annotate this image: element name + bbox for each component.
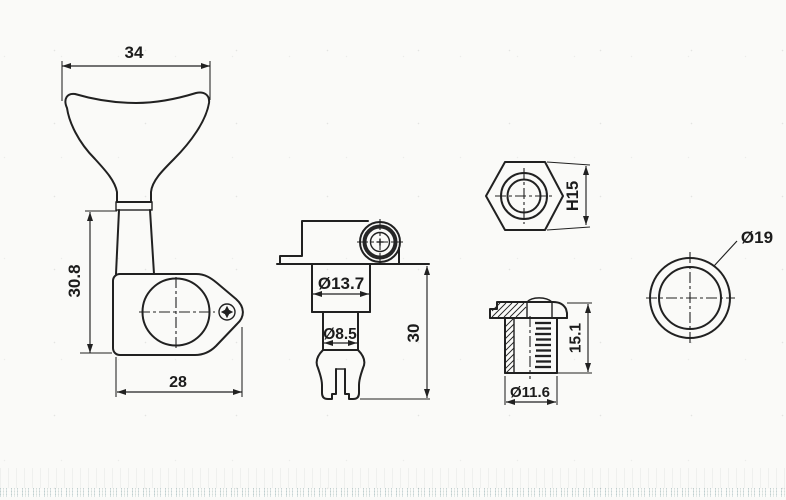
tuner-front-view: Ø13.7 Ø8.5 [277,219,430,399]
tuner-button-outline [65,92,209,202]
bushing-flange [490,302,567,318]
dim-label-nut-height: H15 [564,181,582,211]
gear-end-cap [357,219,403,265]
dimension-body-height: 30.8 [65,211,117,353]
dimension-washer-dia: Ø19 [714,228,773,266]
tuner-gear-housing [113,274,243,355]
screw-cross-icon [377,239,384,246]
post-section: Ø8.5 [323,312,358,350]
washer-view: Ø19 [646,228,773,344]
hex-nut-view: H15 [486,162,590,230]
technical-drawing-page: 34 30.8 28 [0,0,786,500]
dimension-bushing-height: 15.1 [558,303,592,373]
mount-screw [219,304,235,320]
dim-label-bottom-width: 28 [169,374,187,391]
tuner-stem [116,210,154,274]
tuner-drawing-canvas: 34 30.8 28 [0,0,786,500]
phillips-screw-icon [221,306,233,318]
tuner-side-view: 34 30.8 28 [62,43,243,397]
dimension-nut-height: H15 [547,162,590,230]
plate-profile [280,221,368,264]
dim-label-bushing-height: 15.1 [567,323,584,354]
dim-label-bushing-dia: Ø11.6 [510,384,550,401]
dim-label-post-dia: Ø8.5 [323,326,357,343]
dimension-bushing-dia: Ø11.6 [505,376,557,405]
bushing-section-view: 15.1 Ø11.6 [490,298,592,405]
dim-label-body-height: 30.8 [65,264,84,297]
dimension-top-width: 34 [62,43,210,101]
tuner-stem-collar [116,202,152,210]
split-string-post [317,350,365,399]
housing-section: Ø13.7 [312,264,370,312]
dim-label-overall-height: 30 [404,324,423,343]
internal-threads [535,323,551,367]
dim-label-washer-dia: Ø19 [741,228,773,247]
dim-label-top-width: 34 [125,43,144,62]
dim-label-housing-dia: Ø13.7 [318,274,364,293]
wall-hatch [505,318,514,373]
